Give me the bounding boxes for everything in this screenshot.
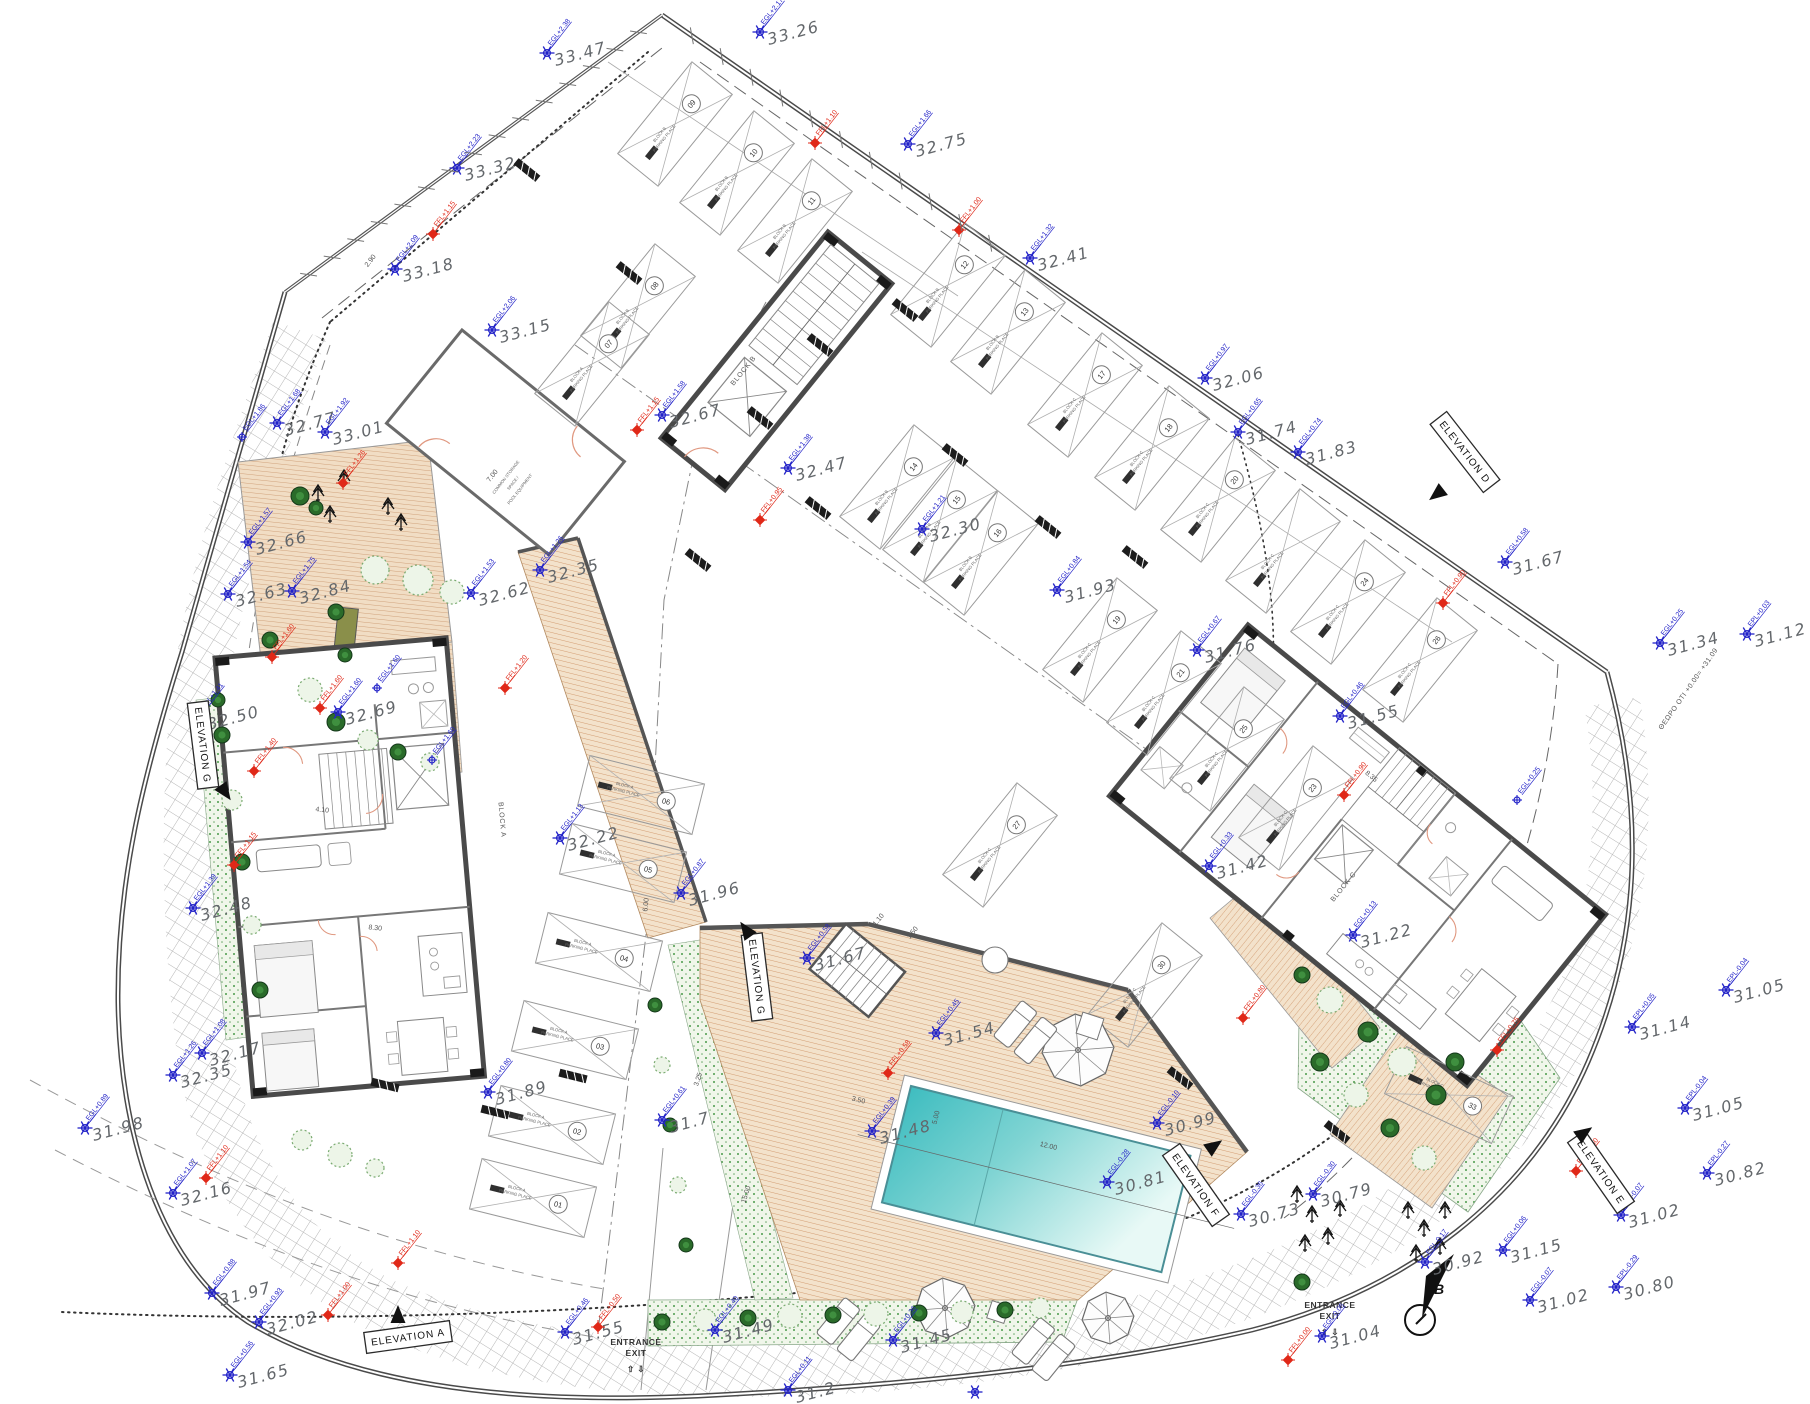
survey-point: EPL+0.0531.14: [1625, 992, 1694, 1043]
parking-stall: BLOCK BPARKING PLACE12: [891, 223, 1006, 347]
ffl-marker: FFL+0.00: [1281, 1326, 1312, 1367]
svg-text:FFL+0.90: FFL+0.90: [1443, 569, 1467, 597]
parking-stall: BLOCK CPARKING PLACE27: [943, 783, 1058, 907]
survey-point: EGL+2.2333.32: [450, 133, 519, 185]
svg-text:31.15: 31.15: [1508, 1235, 1564, 1267]
svg-text:33.26: 33.26: [765, 17, 821, 49]
canopy-tree: [243, 916, 261, 934]
ffl-marker: FFL+1.10: [808, 109, 839, 150]
svg-text:EPL-0.27: EPL-0.27: [1707, 1140, 1731, 1167]
svg-text:30.82: 30.82: [1712, 1158, 1768, 1190]
svg-text:30.73: 30.73: [1246, 1199, 1302, 1231]
svg-text:EGL+2.38: EGL+2.38: [547, 18, 572, 47]
canopy-tree: [1344, 1083, 1368, 1107]
svg-text:FFL+1.15: FFL+1.15: [637, 396, 661, 424]
parking-stall: BLOCK BPARKING PLACE10: [680, 111, 795, 235]
bush-center: [296, 492, 304, 500]
svg-text:EGL+2.06: EGL+2.06: [492, 295, 517, 324]
datum-note: ΘΕΩΡΟ ΟΤΙ +0.00= +31.09: [1658, 647, 1720, 731]
canopy-tree: [403, 565, 433, 595]
svg-text:FFL+0.80: FFL+0.80: [1243, 984, 1267, 1012]
ffl-marker: FFL+0.90: [1436, 569, 1467, 610]
svg-text:EGL+0.80: EGL+0.80: [488, 1057, 513, 1086]
parking-stall: BLOCK APARKING PLACE01: [469, 1158, 596, 1237]
svg-text:EPL-0.04: EPL-0.04: [1726, 957, 1750, 984]
svg-text:32.06: 32.06: [1210, 363, 1266, 395]
wheel-stop: [685, 548, 712, 572]
survey-point: EGL+1.9233.01: [318, 397, 387, 449]
survey-point: EPL-0.2930.80: [1609, 1254, 1678, 1304]
survey-point: EPL+0.0331.12: [1740, 599, 1809, 650]
boundary-ticks: [300, 27, 991, 276]
svg-text:31.14: 31.14: [1637, 1012, 1693, 1044]
survey-point: EGL+0.8031.89: [481, 1057, 550, 1109]
svg-text:EGL-0.07: EGL-0.07: [1530, 1266, 1554, 1294]
canopy-tree: [654, 1057, 670, 1073]
survey-point: EGL+1.6632.75: [901, 109, 970, 161]
svg-text:30.92: 30.92: [1430, 1247, 1486, 1279]
svg-text:32.02: 32.02: [264, 1307, 320, 1339]
elevation-marker: ELEVATION D: [1425, 411, 1500, 506]
bush-center: [658, 1318, 665, 1325]
svg-text:EXIT: EXIT: [626, 1348, 647, 1358]
svg-text:EGL+0.74: EGL+0.74: [1298, 417, 1323, 446]
svg-text:31.02: 31.02: [1535, 1285, 1591, 1317]
egl-label: EGL+0.25: [1512, 766, 1542, 805]
bush-center: [1298, 1278, 1305, 1285]
svg-text:⇧ ⇩: ⇧ ⇩: [627, 1364, 645, 1374]
canopy-tree: [1412, 1146, 1436, 1170]
canopy-tree: [440, 580, 464, 604]
conifer-tree-symbol: [1306, 1206, 1318, 1223]
bush-center: [256, 986, 263, 993]
svg-text:30.80: 30.80: [1621, 1272, 1677, 1304]
svg-text:31.74: 31.74: [1243, 417, 1299, 449]
svg-text:33.01: 33.01: [330, 417, 386, 449]
svg-text:31.05: 31.05: [1731, 975, 1787, 1007]
svg-text:EGL+0.25: EGL+0.25: [1517, 766, 1542, 795]
svg-text:EGL+0.61: EGL+0.61: [662, 1085, 687, 1114]
svg-text:32.75: 32.75: [913, 129, 969, 161]
ffl-marker: FFL+1.20: [498, 654, 529, 695]
svg-text:EPL-0.04: EPL-0.04: [1685, 1075, 1709, 1102]
survey-point: EGL+0.9732.06: [1198, 343, 1267, 395]
survey-point: EGL+0.0631.15: [1496, 1215, 1565, 1267]
survey-point: EGL+0.6131.7: [655, 1085, 713, 1137]
svg-text:31.67: 31.67: [1510, 547, 1566, 579]
svg-text:31.7: 31.7: [667, 1108, 712, 1137]
parking-stall: BLOCK BPARKING PLACE13: [951, 270, 1066, 394]
svg-text:31.12: 31.12: [1752, 619, 1808, 651]
svg-text:32.62: 32.62: [476, 578, 532, 610]
bush-center: [683, 1242, 689, 1248]
bush-center: [652, 1002, 658, 1008]
canopy-tree: [670, 1177, 686, 1193]
parking-stall: BLOCK CPARKING PLACE: [1226, 489, 1341, 613]
svg-text:EPL-0.29: EPL-0.29: [1616, 1254, 1640, 1281]
bush-center: [332, 718, 340, 726]
svg-text:33.47: 33.47: [552, 38, 608, 70]
parking-stall: BLOCK BPARKING PLACE09: [618, 62, 733, 186]
parking-stall: BLOCK CPARKING PLACE18: [1095, 386, 1210, 510]
svg-text:EGL+2.17: EGL+2.17: [760, 0, 785, 26]
svg-text:EGL+1.58: EGL+1.58: [662, 380, 687, 409]
survey-point: EGL+0.5831.67: [1498, 527, 1567, 579]
svg-text:EGL+1.07: EGL+1.07: [173, 1158, 198, 1187]
block-label: BLOCK A: [496, 802, 506, 838]
ffl-marker: FFL+1.15: [630, 396, 661, 437]
svg-text:EGL+0.88: EGL+0.88: [212, 1258, 237, 1287]
survey-point: EPL-0.0431.05: [1678, 1075, 1747, 1125]
canopy-tree: [951, 1301, 973, 1323]
bush-center: [1386, 1124, 1394, 1132]
bush-center: [342, 652, 348, 658]
bush-center: [266, 636, 273, 643]
survey-point: EGL+0.8431.93: [1050, 555, 1119, 607]
svg-text:EGL+0.56: EGL+0.56: [230, 1340, 255, 1369]
svg-text:31.04: 31.04: [1327, 1321, 1383, 1353]
svg-text:EGL-0.30: EGL-0.30: [1313, 1160, 1337, 1188]
svg-text:8.30: 8.30: [368, 924, 382, 932]
svg-text:ELEVATION E: ELEVATION E: [1574, 1139, 1626, 1207]
svg-text:EGL+0.46: EGL+0.46: [1340, 681, 1365, 710]
survey-point: EGL-0.0731.02: [1523, 1266, 1592, 1317]
canopy-tree: [328, 1143, 352, 1167]
bush-center: [313, 505, 319, 511]
bush-center: [218, 731, 225, 738]
bush-center: [1298, 971, 1305, 978]
parking-stall: BLOCK CPARKING PLACE26: [1363, 598, 1478, 722]
bush-center: [332, 608, 339, 615]
ffl-marker: FFL+0.80: [1236, 984, 1267, 1025]
svg-text:EGL+1.66: EGL+1.66: [908, 109, 933, 138]
svg-text:ENTRANCE: ENTRANCE: [610, 1337, 661, 1347]
canopy-tree: [358, 730, 378, 750]
canopy-tree: [778, 1304, 802, 1328]
parking-stall: BLOCK APARKING PLACE03: [511, 1000, 638, 1079]
svg-text:EGL+0.46: EGL+0.46: [565, 1297, 590, 1326]
svg-text:6.00: 6.00: [642, 898, 650, 912]
svg-text:31.65: 31.65: [235, 1360, 291, 1392]
svg-text:EGL+0.06: EGL+0.06: [1503, 1215, 1528, 1244]
svg-text:2.90: 2.90: [364, 253, 378, 268]
ffl-marker: FFL+1.00: [952, 196, 983, 237]
canopy-tree: [298, 678, 322, 702]
wheel-stop: [1035, 515, 1062, 539]
bush-center: [1316, 1058, 1324, 1066]
survey-point: EGL-0.3630.73: [1234, 1180, 1303, 1231]
parking-stall: BLOCK BPARKING PLACE16: [924, 491, 1039, 615]
canopy-tree: [864, 1302, 888, 1326]
svg-text:B: B: [1434, 1281, 1444, 1297]
svg-text:ELEVATION D: ELEVATION D: [1437, 419, 1492, 485]
svg-text:EGL-0.36: EGL-0.36: [1241, 1180, 1265, 1208]
bush-center: [1451, 1058, 1459, 1066]
svg-text:EGL+1.38: EGL+1.38: [788, 433, 813, 462]
canopy-tree: [1030, 1298, 1050, 1318]
svg-text:33.18: 33.18: [400, 254, 456, 286]
canopy-tree: [292, 1130, 312, 1150]
bush-center: [1364, 1028, 1373, 1037]
bush-center: [1001, 1306, 1008, 1313]
svg-text:EGL+0.25: EGL+0.25: [1660, 608, 1685, 637]
parking-stall: BLOCK CPARKING PLACE24: [1291, 540, 1406, 664]
wheel-stop: [558, 1069, 587, 1084]
svg-text:FFL+1.10: FFL+1.10: [398, 1229, 422, 1257]
survey-point: EPL-0.0431.05: [1719, 957, 1788, 1007]
canopy-tree: [1317, 987, 1343, 1013]
ffl-marker: FFL+1.15: [426, 200, 457, 241]
survey-point: EGL+1.3832.47: [781, 433, 850, 485]
parking-stall: BLOCK APARKING PLACE07: [535, 302, 650, 426]
round-table: [982, 947, 1008, 973]
canopy-tree: [361, 556, 389, 584]
survey-point: EGL+2.1733.26: [753, 0, 822, 49]
svg-text:EGL+0.58: EGL+0.58: [1505, 527, 1530, 556]
survey-point: EGL+2.0633.15: [485, 295, 554, 347]
svg-text:EGL+1.32: EGL+1.32: [1030, 223, 1055, 252]
bush-center: [829, 1311, 836, 1318]
svg-text:32.47: 32.47: [793, 453, 849, 485]
svg-text:33.15: 33.15: [497, 315, 553, 347]
svg-text:32.30: 32.30: [927, 514, 983, 546]
svg-text:32.22: 32.22: [565, 823, 621, 855]
svg-text:EGL+0.97: EGL+0.97: [1205, 343, 1230, 372]
bush-center: [394, 748, 401, 755]
svg-text:31.05: 31.05: [1690, 1093, 1746, 1125]
survey-point: EGL+0.5631.65: [223, 1340, 292, 1392]
survey-point: EGL-0.3030.79: [1306, 1160, 1375, 1211]
svg-text:EPL+0.05: EPL+0.05: [1632, 992, 1657, 1021]
parking-stall: BLOCK CPARKING PLACE20: [1161, 438, 1276, 562]
canopy-tree: [366, 1159, 384, 1177]
svg-text:31.98: 31.98: [90, 1113, 146, 1145]
site-plan-drawing: BLOCK BPARKING PLACE09BLOCK BPARKING PLA…: [0, 0, 1810, 1404]
survey-point: EGL+1.3232.41: [1023, 223, 1092, 275]
survey-point: [968, 1386, 983, 1399]
wheel-stop: [1122, 545, 1149, 569]
bush-center: [1432, 1091, 1441, 1100]
svg-text:FFL+1.20: FFL+1.20: [505, 654, 529, 682]
svg-text:EPL+0.03: EPL+0.03: [1747, 599, 1772, 628]
svg-text:FFL+0.00: FFL+0.00: [1288, 1326, 1312, 1354]
ffl-marker: FFL+1.10: [391, 1229, 422, 1270]
svg-text:EGL+2.09: EGL+2.09: [395, 234, 420, 263]
svg-text:32.41: 32.41: [1035, 243, 1091, 275]
svg-text:EGL+1.53: EGL+1.53: [471, 558, 496, 587]
svg-text:FFL+0.95: FFL+0.95: [760, 486, 784, 514]
svg-text:31.02: 31.02: [1626, 1200, 1682, 1232]
survey-point: EPL-0.2730.82: [1700, 1140, 1769, 1190]
svg-text:EGL+1.13: EGL+1.13: [560, 803, 585, 832]
svg-text:EGL+0.89: EGL+0.89: [85, 1093, 110, 1122]
ffl-marker: FFL+0.95: [753, 486, 784, 527]
survey-point: EGL+0.8831.97: [205, 1258, 274, 1310]
svg-text:4.10: 4.10: [315, 806, 329, 814]
svg-text:31.83: 31.83: [1303, 437, 1359, 469]
site-plan-page: BLOCK BPARKING PLACE09BLOCK BPARKING PLA…: [0, 0, 1810, 1404]
svg-text:31.89: 31.89: [493, 1077, 549, 1109]
svg-text:EGL+0.67: EGL+0.67: [1197, 615, 1222, 644]
parking-stall: BLOCK BPARKING PLACE08: [581, 244, 696, 368]
block-b-building: [661, 232, 891, 490]
svg-text:ENTRANCE: ENTRANCE: [1304, 1300, 1355, 1310]
parking-stall: BLOCK CPARKING PLACE17: [1028, 333, 1143, 457]
svg-text:1.10: 1.10: [872, 912, 886, 927]
canopy-tree: [1388, 1048, 1416, 1076]
svg-text:EGL+0.84: EGL+0.84: [1057, 555, 1082, 584]
survey-point: EGL+2.0933.18: [388, 234, 457, 286]
svg-text:FFL+1.00: FFL+1.00: [959, 196, 983, 224]
